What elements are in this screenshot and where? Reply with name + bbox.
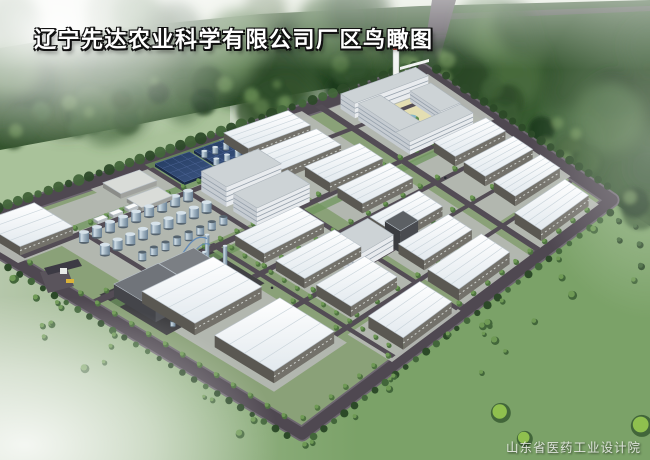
storage-tank: [212, 146, 218, 155]
storage-tank: [189, 206, 199, 220]
storage-tank: [219, 215, 227, 226]
storage-tank: [196, 225, 204, 236]
storage-tank: [138, 251, 146, 262]
storage-tank: [173, 235, 181, 246]
storage-tank: [144, 204, 154, 218]
storage-tank: [118, 215, 128, 229]
storage-tank: [79, 230, 89, 244]
rendering-canvas: 辽宁先达农业科学有限公司厂区鸟瞰图 山东省医药工业设计院: [0, 0, 650, 460]
storage-tank: [131, 210, 141, 224]
storage-tank: [201, 150, 207, 159]
storage-tank: [164, 216, 174, 230]
bus: [66, 279, 74, 283]
storage-tank: [208, 220, 216, 231]
storage-tank: [162, 241, 170, 252]
storage-tank: [100, 243, 110, 257]
storage-tank: [125, 232, 135, 246]
storage-tank: [92, 225, 102, 239]
storage-tank: [202, 200, 212, 214]
site-title: 辽宁先达农业科学有限公司厂区鸟瞰图: [34, 22, 434, 54]
designer-watermark: 山东省医药工业设计院: [506, 437, 641, 456]
storage-tank: [176, 211, 186, 225]
storage-tank: [185, 230, 193, 241]
scene-svg: [0, 0, 650, 460]
storage-tank: [113, 238, 123, 252]
storage-tank: [138, 227, 148, 241]
storage-tank: [183, 189, 193, 203]
storage-tank: [150, 246, 158, 257]
storage-tank: [105, 220, 115, 234]
storage-tank: [151, 222, 161, 236]
